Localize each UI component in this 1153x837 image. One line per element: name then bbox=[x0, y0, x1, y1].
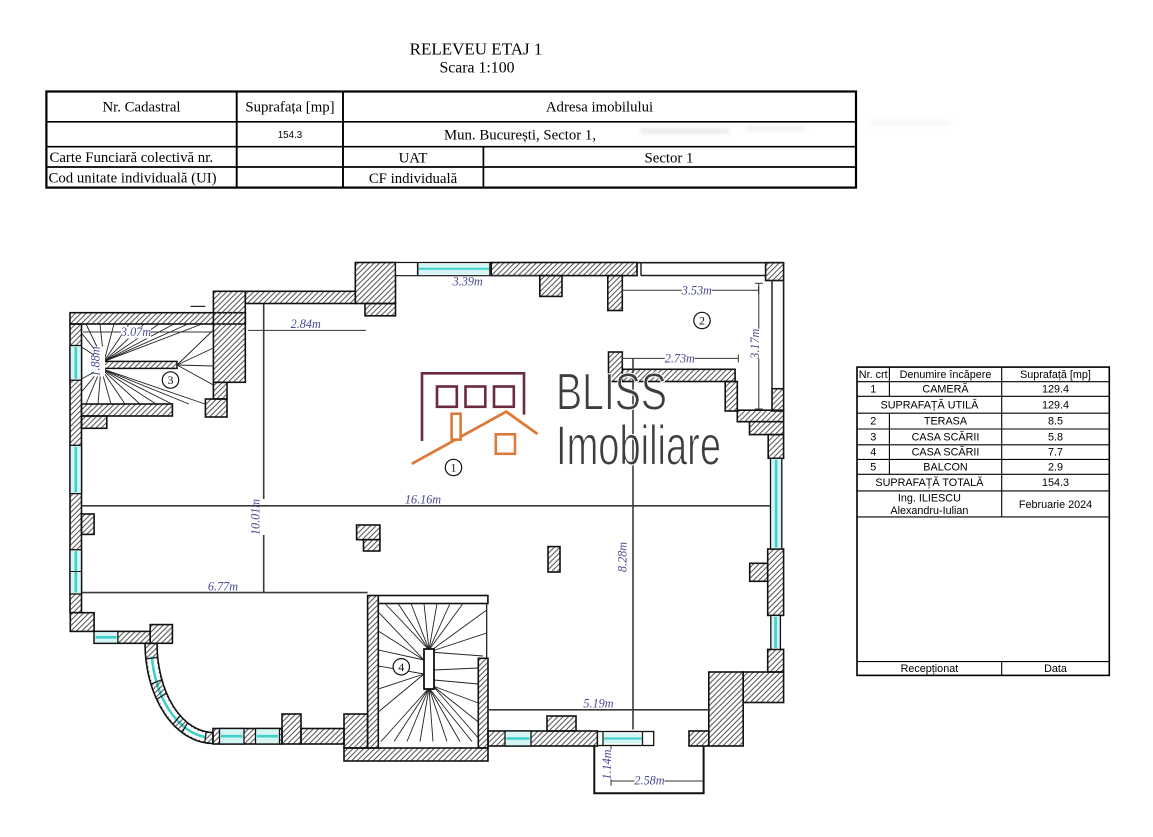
svg-text:UAT: UAT bbox=[399, 150, 428, 166]
svg-text:8.28m: 8.28m bbox=[616, 542, 630, 572]
svg-text:Data: Data bbox=[1044, 663, 1067, 675]
svg-text:2.58m: 2.58m bbox=[634, 774, 664, 788]
svg-text:CAMERĂ: CAMERĂ bbox=[922, 383, 969, 396]
svg-text:Adresa imobilului: Adresa imobilului bbox=[546, 100, 653, 116]
svg-text:129.4: 129.4 bbox=[1042, 399, 1069, 411]
svg-text:3.39m: 3.39m bbox=[452, 275, 483, 289]
svg-text:CASA SCĂRII: CASA SCĂRII bbox=[912, 446, 980, 459]
svg-text:Denumire încăpere: Denumire încăpere bbox=[900, 369, 992, 381]
svg-text:Imobiliare: Imobiliare bbox=[556, 414, 721, 477]
svg-text:8.5: 8.5 bbox=[1048, 416, 1063, 428]
svg-text:Nr. Cadastral: Nr. Cadastral bbox=[102, 100, 180, 116]
svg-text:1: 1 bbox=[870, 384, 876, 396]
svg-text:Suprafață [mp]: Suprafață [mp] bbox=[1020, 369, 1091, 381]
svg-text:Februarie 2024: Februarie 2024 bbox=[1019, 499, 1092, 511]
svg-text:TERASA: TERASA bbox=[924, 416, 968, 428]
svg-text:7.7: 7.7 bbox=[1048, 447, 1063, 459]
svg-text:SUPRAFAȚĂ UTILĂ: SUPRAFAȚĂ UTILĂ bbox=[881, 398, 980, 411]
svg-text:154.3: 154.3 bbox=[278, 130, 303, 141]
svg-text:Cod unitate individuală (UI): Cod unitate individuală (UI) bbox=[49, 170, 217, 186]
svg-text:16.16m: 16.16m bbox=[405, 492, 441, 506]
svg-text:5.19m: 5.19m bbox=[583, 696, 613, 710]
svg-text:5: 5 bbox=[870, 462, 876, 474]
svg-text:Scara 1:100: Scara 1:100 bbox=[439, 60, 514, 77]
svg-text:2.9: 2.9 bbox=[1048, 462, 1063, 474]
svg-text:Mun. București, Sector 1,: Mun. București, Sector 1, bbox=[444, 127, 596, 143]
svg-text:Suprafața [mp]: Suprafața [mp] bbox=[245, 100, 334, 116]
svg-text:RELEVEU ETAJ 1: RELEVEU ETAJ 1 bbox=[410, 40, 543, 59]
svg-text:129.4: 129.4 bbox=[1042, 384, 1069, 396]
svg-text:154.3: 154.3 bbox=[1042, 477, 1069, 489]
svg-text:CF individuală: CF individuală bbox=[369, 171, 458, 187]
svg-text:3.07m: 3.07m bbox=[120, 325, 151, 339]
svg-text:SUPRAFAȚĂ TOTALĂ: SUPRAFAȚĂ TOTALĂ bbox=[875, 476, 984, 489]
svg-text:3: 3 bbox=[168, 373, 174, 387]
svg-text:2.73m: 2.73m bbox=[665, 352, 695, 366]
svg-text:2: 2 bbox=[699, 314, 705, 328]
svg-text:Nr. crt: Nr. crt bbox=[859, 369, 888, 381]
svg-text:Recepționat: Recepționat bbox=[901, 663, 959, 675]
svg-text:10.01m: 10.01m bbox=[249, 499, 263, 535]
svg-text:4: 4 bbox=[398, 660, 404, 674]
svg-text:1.88m: 1.88m bbox=[89, 346, 103, 376]
svg-text:3.53m: 3.53m bbox=[681, 284, 712, 298]
svg-text:4: 4 bbox=[870, 447, 876, 459]
svg-text:5.8: 5.8 bbox=[1048, 432, 1063, 444]
svg-text:2.84m: 2.84m bbox=[291, 317, 321, 331]
svg-text:Alexandru-Iulian: Alexandru-Iulian bbox=[890, 505, 968, 517]
svg-text:1: 1 bbox=[451, 461, 457, 475]
svg-text:6.77m: 6.77m bbox=[208, 580, 238, 594]
svg-text:CASA SCĂRII: CASA SCĂRII bbox=[912, 431, 980, 444]
svg-text:2: 2 bbox=[870, 416, 876, 428]
svg-text:Sector 1: Sector 1 bbox=[645, 150, 694, 166]
svg-text:3.17m: 3.17m bbox=[748, 328, 762, 359]
svg-text:3: 3 bbox=[870, 432, 876, 444]
svg-text:Ing. ILIESCU: Ing. ILIESCU bbox=[898, 493, 961, 505]
svg-text:Carte Funciară colectivă nr.: Carte Funciară colectivă nr. bbox=[50, 150, 214, 166]
svg-text:1.14m: 1.14m bbox=[600, 749, 614, 779]
svg-text:BALCON: BALCON bbox=[923, 462, 967, 474]
